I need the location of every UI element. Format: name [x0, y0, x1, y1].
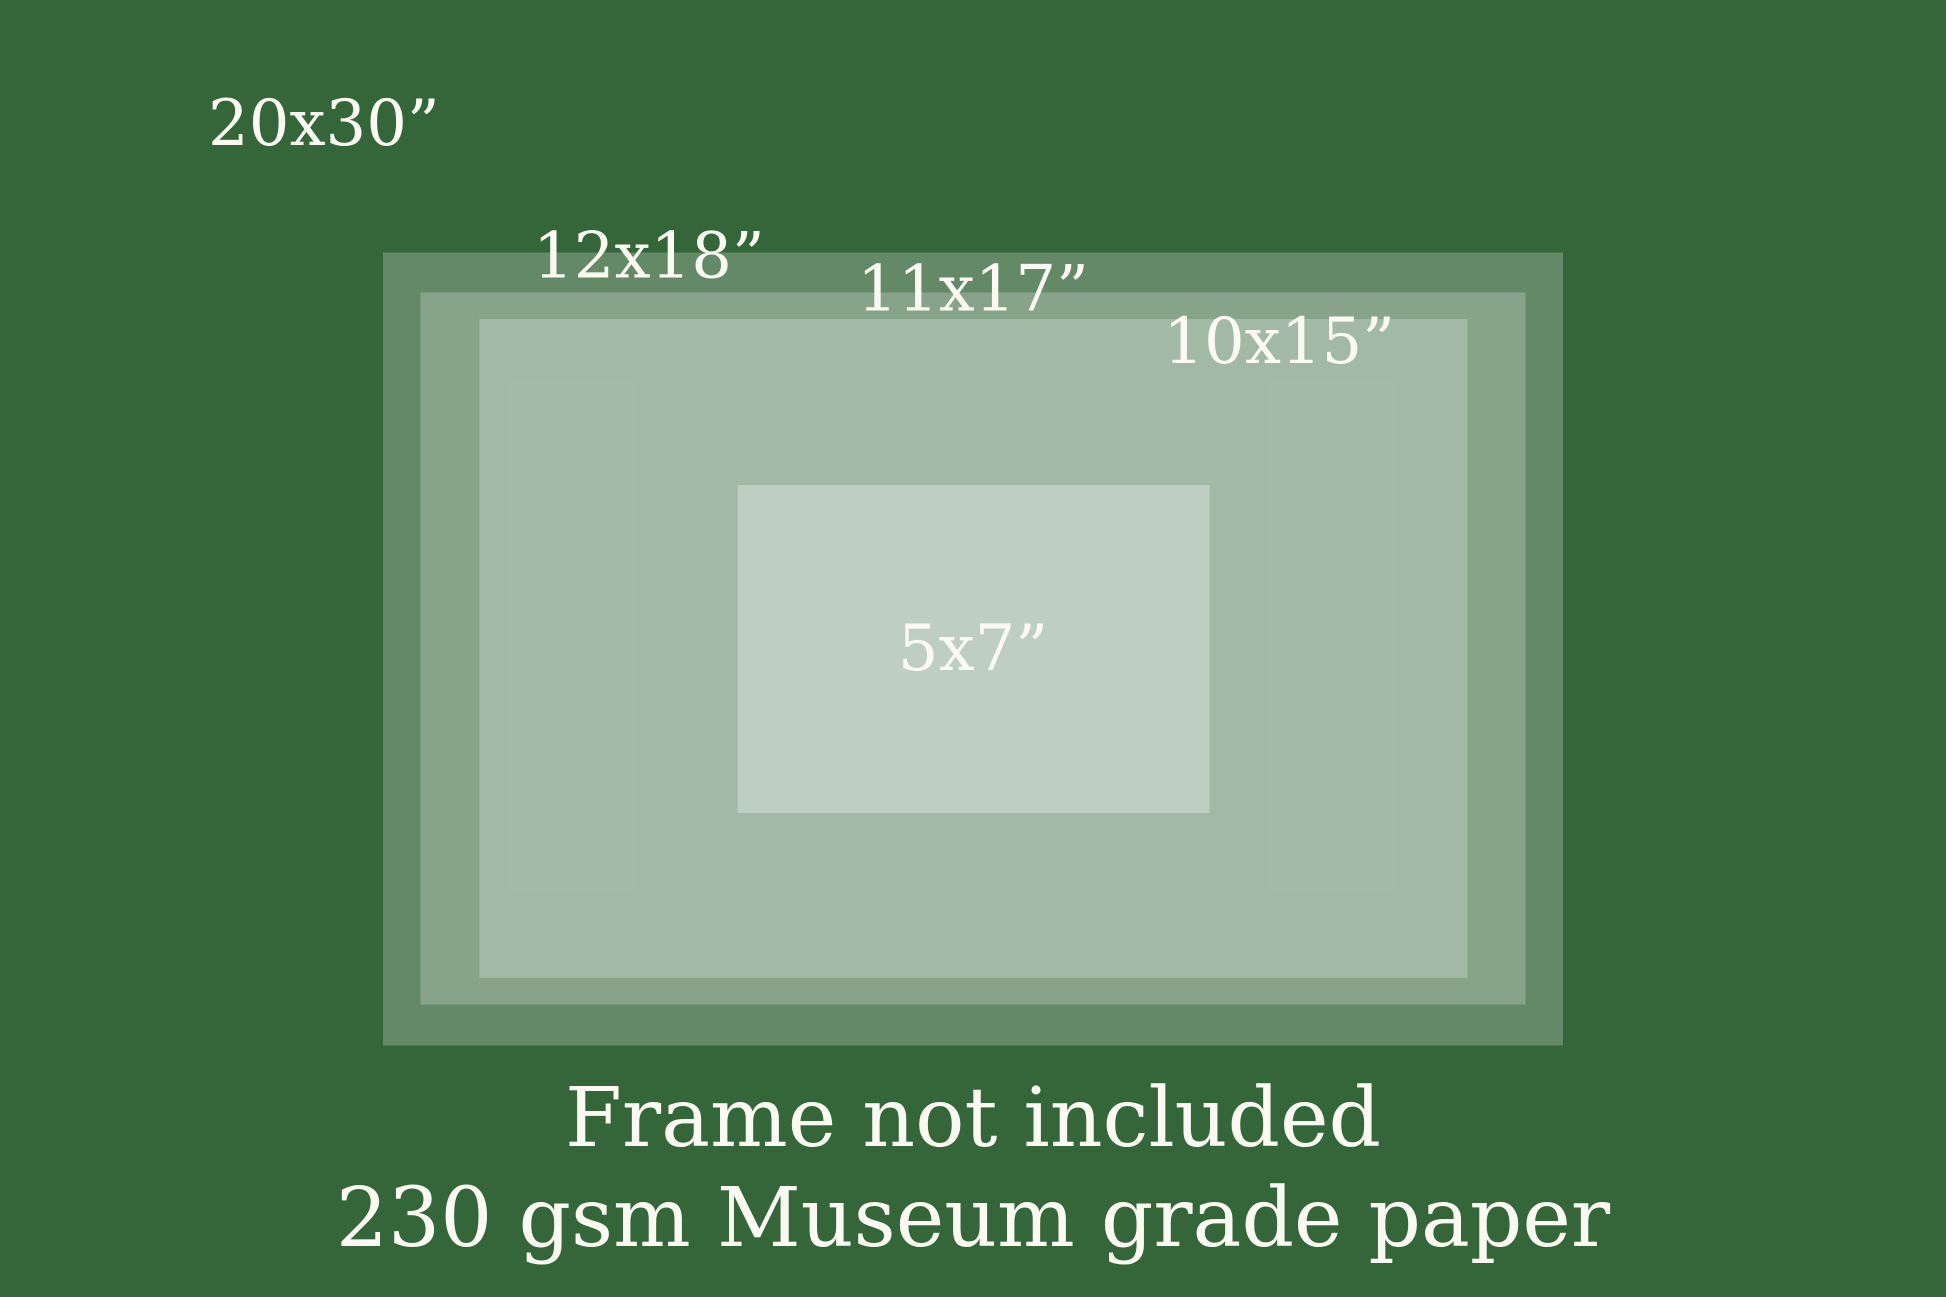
size-label-12x18: 12x18” [533, 224, 765, 288]
caption-line-paper-spec: 230 gsm Museum grade paper [0, 1169, 1946, 1269]
size-label-10x15: 10x15” [1163, 310, 1395, 374]
caption: Frame not included 230 gsm Museum grade … [0, 1069, 1946, 1269]
print-size-rect-5x7: 5x7” [737, 485, 1209, 813]
print-size-rect-11x17: 11x17” 10x15” 5x7” [421, 293, 1526, 1005]
caption-line-frame-not-included: Frame not included [0, 1069, 1946, 1169]
print-size-chart: 20x30” 12x18” 11x17” 10x15” 5x7” Frame n… [0, 0, 1946, 1297]
size-label-11x17: 11x17” [857, 258, 1089, 322]
size-label-20x30: 20x30” [208, 92, 440, 156]
size-label-5x7: 5x7” [898, 617, 1048, 681]
print-size-rect-12x18: 12x18” 11x17” 10x15” 5x7” [383, 252, 1563, 1045]
print-size-rect-10x15: 10x15” 5x7” [479, 319, 1467, 978]
